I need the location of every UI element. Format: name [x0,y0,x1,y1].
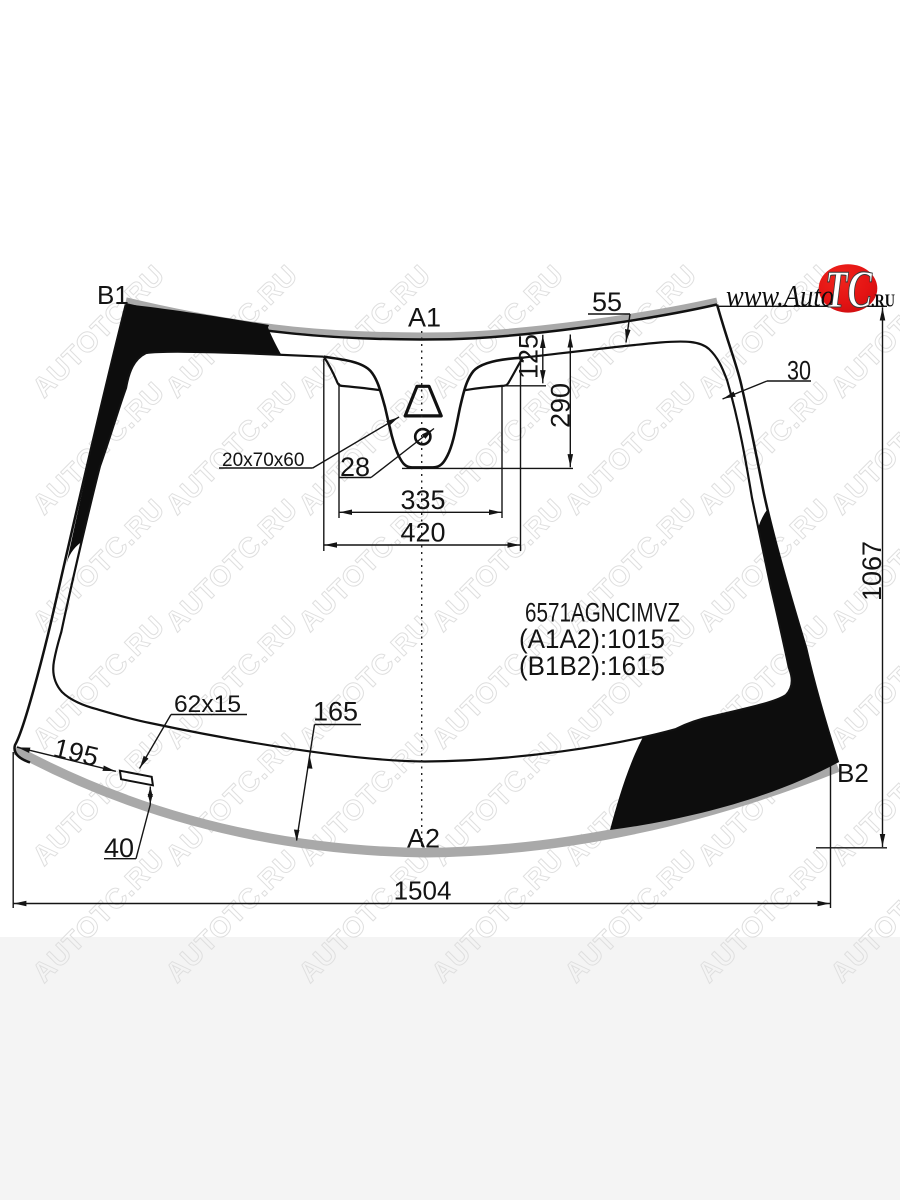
svg-text:62x15: 62x15 [174,691,241,718]
svg-text:A1: A1 [408,303,441,333]
svg-text:55: 55 [592,287,622,317]
svg-text:B2: B2 [837,758,869,788]
svg-text:20x70x60: 20x70x60 [222,450,304,471]
svg-text:1504: 1504 [394,876,452,906]
svg-text:30: 30 [787,356,811,386]
svg-text:420: 420 [400,518,445,548]
svg-text:40: 40 [104,833,134,863]
svg-text:www.Auto: www.Auto [726,278,834,313]
svg-text:TC: TC [825,261,872,319]
svg-text:165: 165 [313,697,358,727]
svg-text:B1: B1 [97,280,129,310]
svg-text:.RU: .RU [871,291,895,311]
svg-text:6571AGNCIMVZ: 6571AGNCIMVZ [525,598,680,628]
svg-text:(A1A2):1015: (A1A2):1015 [519,624,665,654]
svg-text:1067: 1067 [857,541,887,601]
svg-text:125: 125 [514,334,544,379]
svg-text:(B1B2):1615: (B1B2):1615 [519,651,665,681]
svg-text:290: 290 [546,383,576,428]
svg-text:28: 28 [340,452,370,482]
svg-text:335: 335 [400,485,445,515]
svg-text:A2: A2 [407,824,440,854]
